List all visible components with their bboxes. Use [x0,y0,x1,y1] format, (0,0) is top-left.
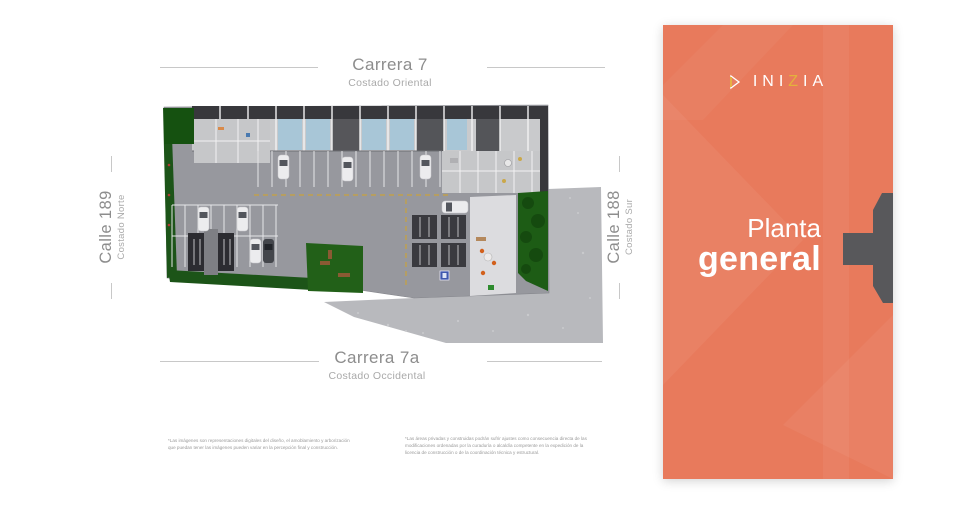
play-triangle-icon [728,74,742,90]
slide-canvas: Carrera 7 Costado Oriental Carrera 7a Co… [0,0,974,505]
brand-wordmark-end: IA [803,73,828,90]
disclaimer-right: *Las áreas privadas y construidas podrán… [405,435,598,456]
tick-line-left-top [111,156,112,172]
street-side-top: Costado Oriental [300,77,480,89]
page-title-line1: Planta [698,215,821,242]
street-label-bottom: Carrera 7a Costado Occidental [287,349,467,382]
tick-line-right-top [619,156,620,172]
brand-panel: INIZIA Planta general [663,25,893,479]
floor-plan-render [158,103,608,348]
disclaimer-left: *Las imágenes son representaciones digit… [168,437,354,451]
street-name-left: Calle 189 [97,190,115,263]
tick-line-right-bottom [619,283,620,299]
street-name-top: Carrera 7 [300,56,480,75]
divider-line-bottom-right [487,361,602,362]
brand-logo: INIZIA [663,67,893,97]
street-label-top: Carrera 7 Costado Oriental [300,56,480,89]
section-tab-marker [843,193,893,303]
tick-line-left-bottom [111,283,112,299]
street-label-right: Calle 188 Costado Sur [605,190,635,263]
brand-wordmark: INIZIA [753,73,828,91]
divider-line-top-right [487,67,605,68]
street-label-left: Calle 189 Costado Norte [97,190,127,263]
page-title-line2: general [698,242,821,277]
divider-line-bottom-left [160,361,319,362]
brand-wordmark-accent: Z [788,73,803,90]
street-name-bottom: Carrera 7a [287,349,467,368]
brand-wordmark-start: INI [753,73,788,90]
divider-line-top-left [160,67,318,68]
street-side-bottom: Costado Occidental [287,370,467,382]
street-side-right: Costado Sur [624,190,635,263]
page-title: Planta general [698,215,821,277]
street-side-left: Costado Norte [116,190,127,263]
